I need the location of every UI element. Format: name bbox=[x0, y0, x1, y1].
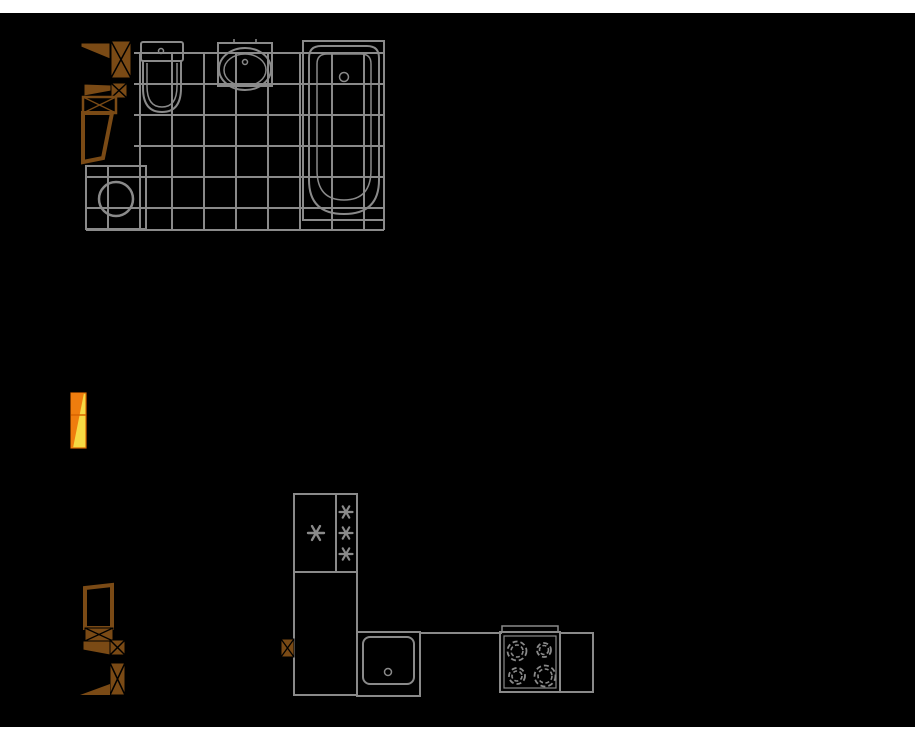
plan-canvas bbox=[0, 13, 915, 727]
door-jamb bbox=[110, 640, 125, 655]
door-jamb bbox=[111, 41, 131, 78]
door-frame-box bbox=[83, 97, 116, 113]
hall-door-yellow[interactable] bbox=[71, 393, 86, 448]
door-leaf-frame bbox=[85, 585, 112, 628]
kitchen-wall-connector[interactable] bbox=[281, 639, 294, 657]
wall-post bbox=[281, 639, 294, 657]
floor-plan-svg bbox=[0, 0, 915, 739]
floor-plan-page bbox=[0, 0, 915, 739]
door-jamb bbox=[85, 628, 113, 641]
door-jamb bbox=[110, 663, 125, 695]
entry-door-top[interactable] bbox=[85, 585, 113, 641]
